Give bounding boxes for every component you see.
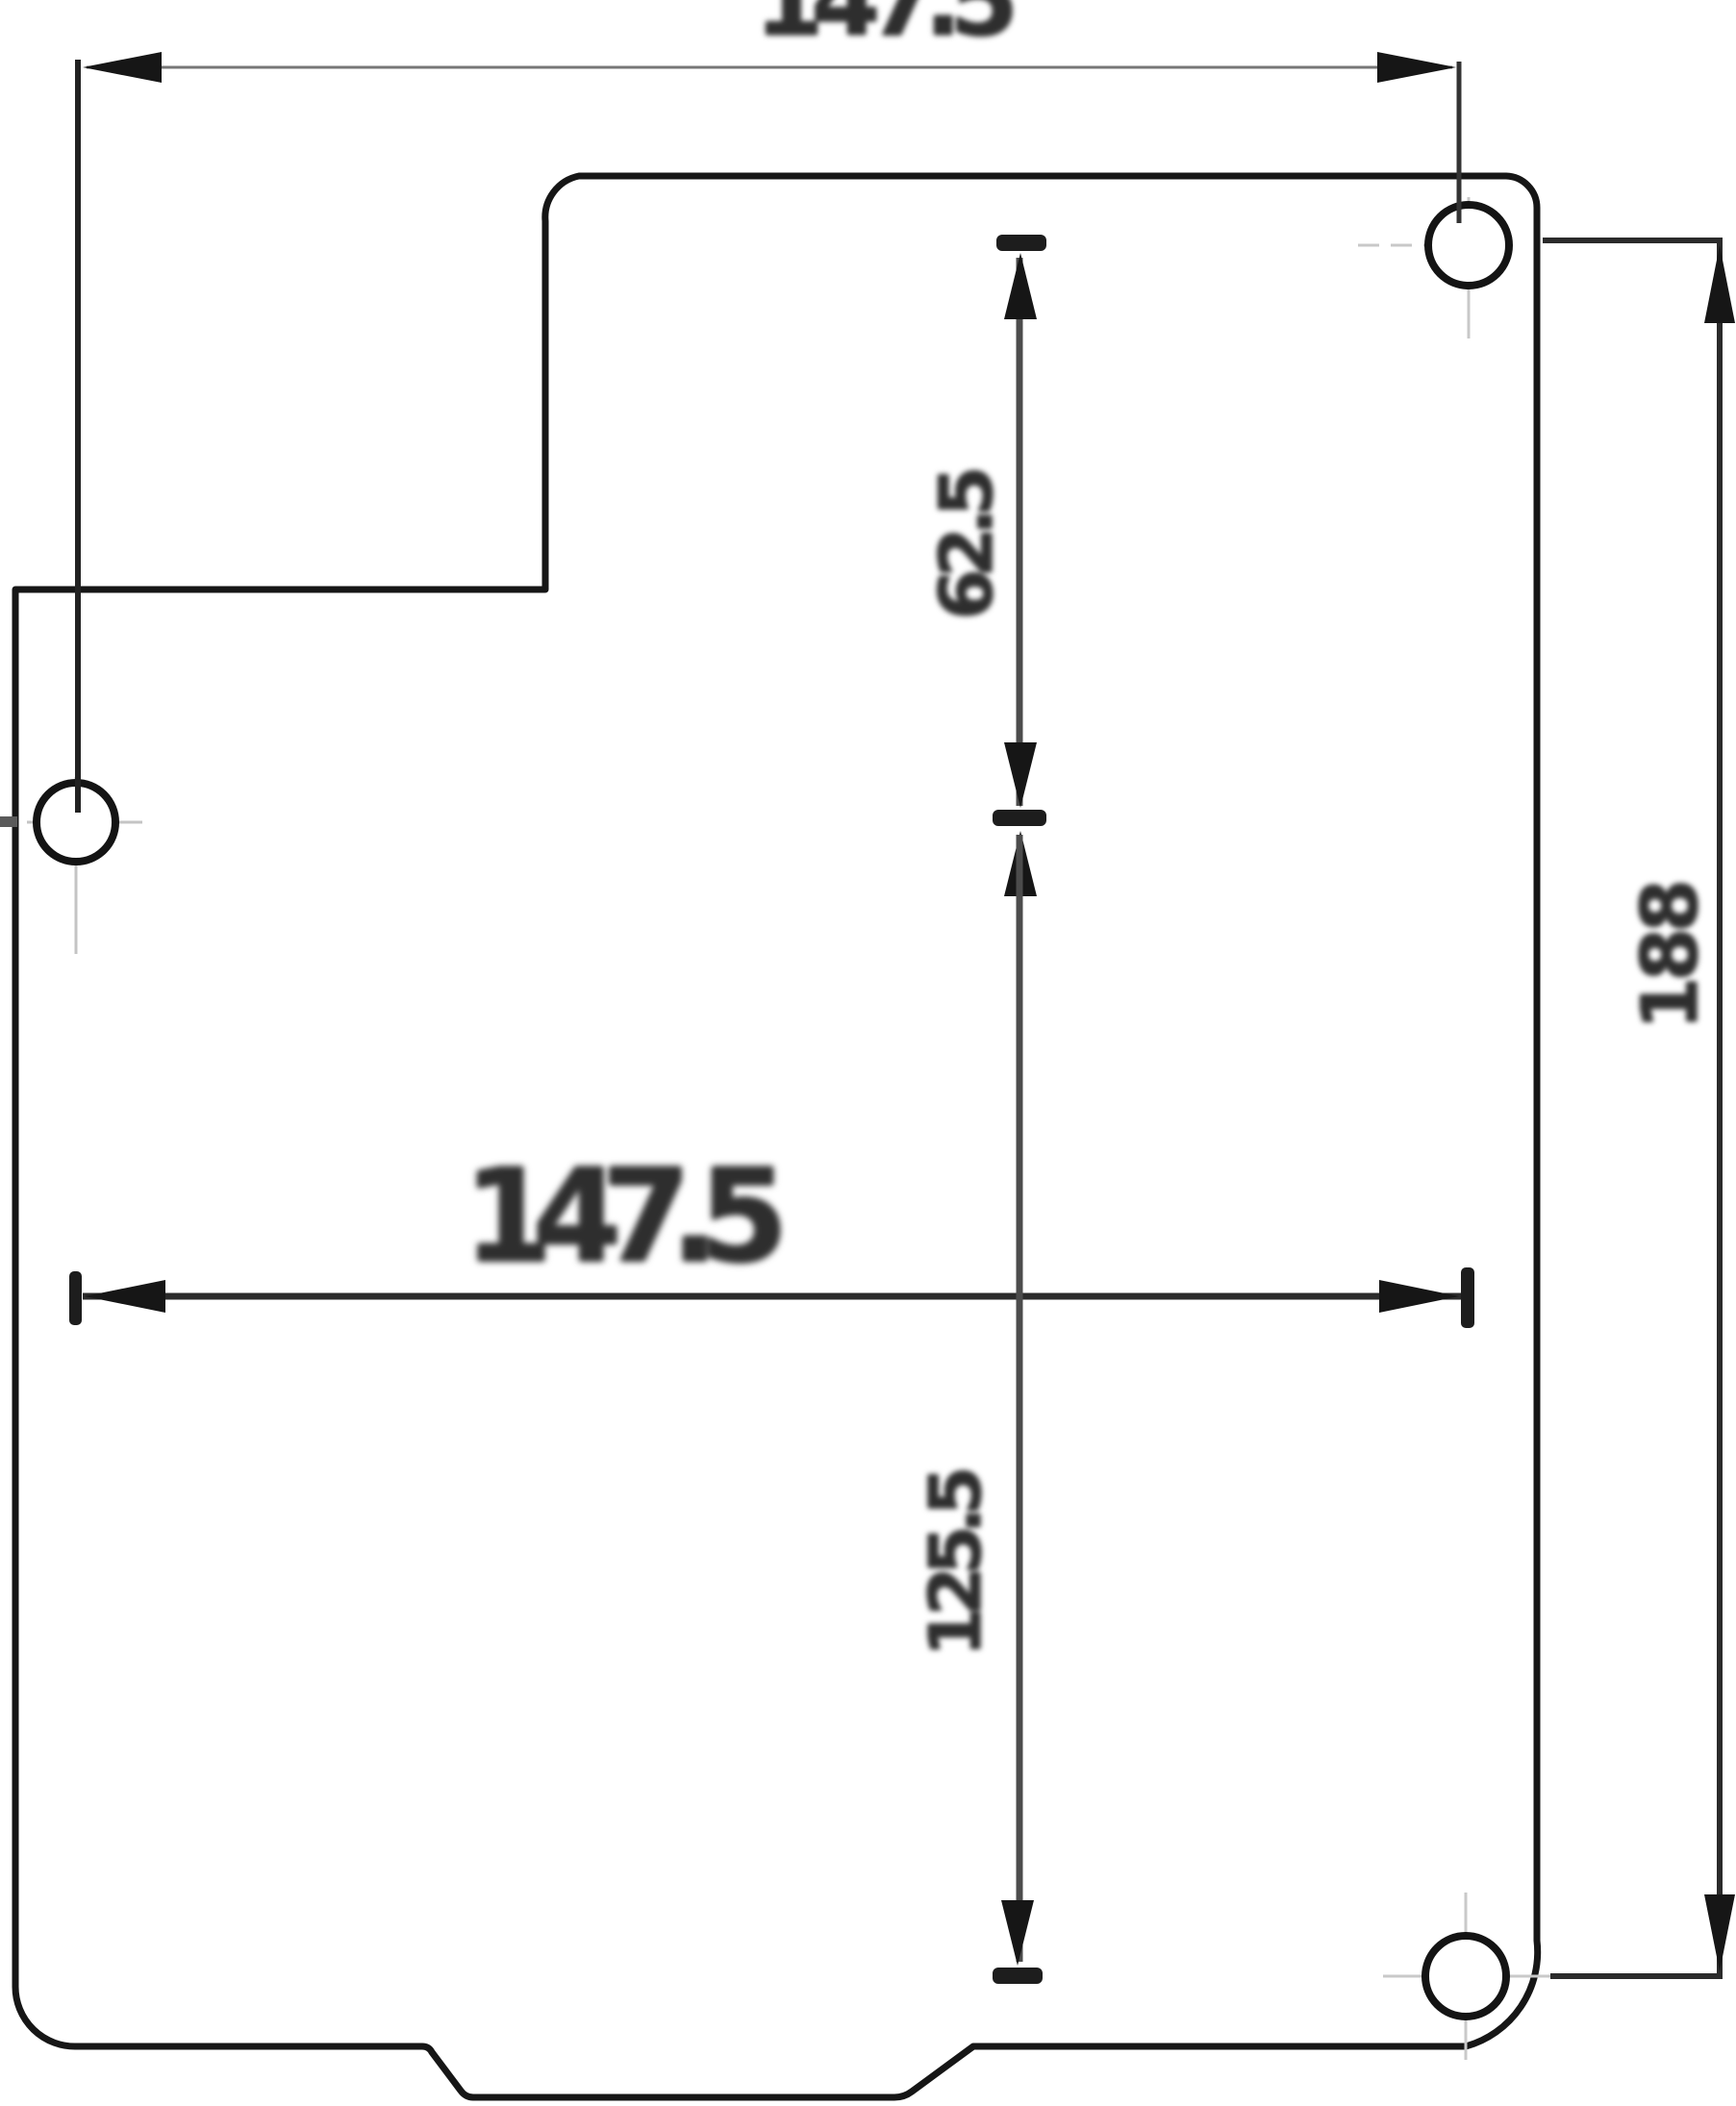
top-dim-arrow-right — [1377, 52, 1456, 83]
left-edge-tick — [0, 816, 17, 827]
center-dim-tick-right — [1461, 1267, 1474, 1328]
plate-drawing-svg — [0, 0, 1736, 2106]
mid-dim-tick-top — [996, 235, 1046, 251]
plate-outline — [15, 176, 1538, 2097]
dim-label-lower-height: 125.5 — [920, 1484, 997, 1657]
right-dim-arrow-down — [1704, 1894, 1735, 1971]
drawing-canvas: 147.5 147.5 62.5 125.5 188 — [0, 0, 1736, 2106]
mid-dim-tick-middle — [993, 810, 1046, 826]
center-dim-tick-left — [69, 1271, 82, 1325]
dim-label-right-height: 188 — [1632, 880, 1709, 1034]
dim-label-upper-height: 62.5 — [930, 461, 1007, 634]
mid-dim-tick-bottom — [993, 1968, 1043, 1984]
mounting-hole-top-right — [1428, 205, 1509, 286]
right-dim-arrow-up — [1704, 245, 1735, 323]
top-dim-arrow-left — [83, 52, 162, 83]
mounting-hole-bottom-right — [1425, 1936, 1506, 2017]
dim-label-center-width: 147.5 — [452, 1152, 779, 1281]
dim-label-top-width: 147.5 — [717, 0, 1044, 50]
